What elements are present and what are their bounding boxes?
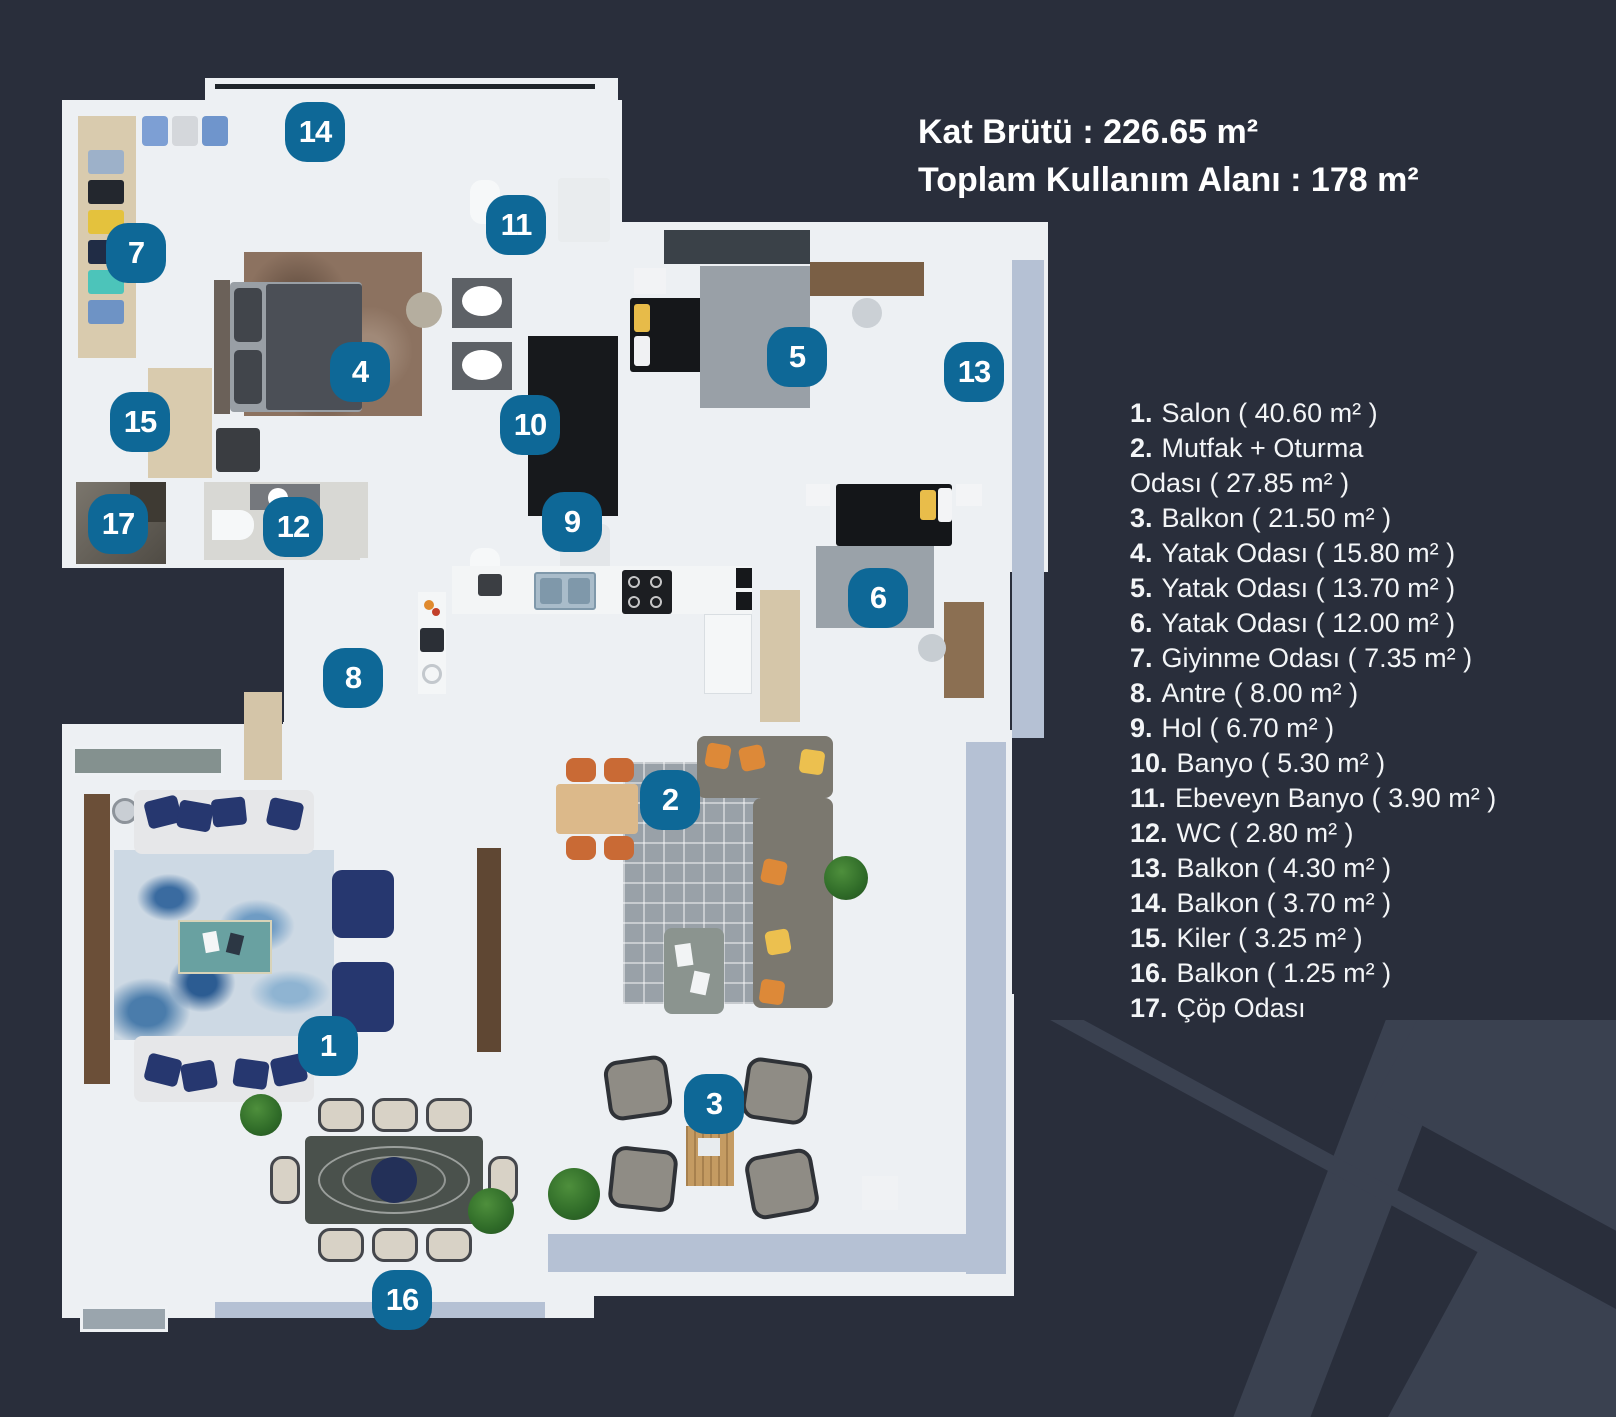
folded-clothes	[88, 150, 124, 174]
ac-unit	[862, 1176, 898, 1210]
throw-pillow	[232, 1058, 270, 1090]
built-in-oven	[736, 592, 752, 610]
legend-item-2: 2.Mutfak + Oturma Odası ( 27.85 m² )	[1130, 431, 1530, 501]
bed-pillow	[634, 304, 650, 332]
wc-toilet	[212, 510, 254, 540]
room-badge-10: 10	[500, 395, 560, 455]
outdoor-armchair	[607, 1145, 679, 1214]
interior-wall	[283, 722, 453, 786]
plant	[468, 1188, 514, 1234]
throw-pillow	[176, 799, 214, 832]
desk	[810, 262, 924, 296]
legend-item-6: 6.Yatak Odası ( 12.00 m² )	[1130, 606, 1530, 641]
room-badge-11: 11	[486, 195, 546, 255]
legend-item-12: 12.WC ( 2.80 m² )	[1130, 816, 1530, 851]
legend-item-4: 4.Yatak Odası ( 15.80 m² )	[1130, 536, 1530, 571]
legend-item-15: 15.Kiler ( 3.25 m² )	[1130, 921, 1530, 956]
shower-tray	[558, 178, 610, 242]
nightstand	[806, 484, 830, 506]
magazine	[675, 943, 694, 967]
coffee-machine	[420, 628, 444, 652]
terrace-slab-bottom	[548, 1234, 966, 1272]
table-tray	[698, 1138, 720, 1156]
throw-pillow	[738, 744, 766, 772]
legend-item-3: 3.Balkon ( 21.50 m² )	[1130, 501, 1530, 536]
bed-pillow	[938, 488, 952, 522]
room-badge-14: 14	[285, 102, 345, 162]
background-stripe	[1327, 1240, 1616, 1417]
dining-chair	[426, 1228, 472, 1262]
plant	[240, 1094, 282, 1136]
legend-item-7: 7.Giyinme Odası ( 7.35 m² )	[1130, 641, 1530, 676]
wardrobe	[664, 230, 810, 264]
legend-item-10: 10.Banyo ( 5.30 m² )	[1130, 746, 1530, 781]
folded-clothes	[88, 300, 124, 324]
bench	[216, 428, 260, 472]
dining-chair	[318, 1228, 364, 1262]
armchair	[332, 870, 394, 938]
fruit-bowl	[432, 608, 440, 616]
bed-headboard	[214, 280, 230, 414]
sofa	[753, 798, 833, 1008]
cooktop-burner	[650, 596, 662, 608]
balcony-14-rail	[215, 84, 595, 89]
round-side-table	[406, 292, 442, 328]
pantry-cabinet	[244, 692, 282, 780]
throw-pillow	[760, 858, 788, 886]
dining-chair	[372, 1098, 418, 1132]
desk-chair	[918, 634, 946, 662]
dining-chair	[426, 1098, 472, 1132]
bed-pillow	[634, 336, 650, 366]
desk-chair	[852, 298, 882, 328]
room-badge-1: 1	[298, 1016, 358, 1076]
nightstand	[956, 484, 982, 506]
room-badge-13: 13	[944, 342, 1004, 402]
bed-pillow	[920, 490, 936, 520]
legend-item-14: 14.Balkon ( 3.70 m² )	[1130, 886, 1530, 921]
interior-wall	[503, 788, 513, 1010]
sink	[462, 286, 502, 316]
cooktop-burner	[650, 576, 662, 588]
chair	[604, 836, 634, 860]
throw-pillow	[211, 796, 248, 827]
room-badge-3: 3	[684, 1074, 744, 1134]
outdoor-armchair	[740, 1056, 814, 1127]
salon-window	[80, 1306, 168, 1332]
sink	[462, 350, 502, 380]
plant	[548, 1168, 600, 1220]
nightstand	[634, 268, 666, 294]
legend-item-13: 13.Balkon ( 4.30 m² )	[1130, 851, 1530, 886]
island-sink	[422, 664, 442, 684]
coffee-table	[178, 920, 272, 974]
hanging-shirt	[202, 116, 228, 146]
chair	[604, 758, 634, 782]
dining-chair	[318, 1098, 364, 1132]
interior-wall	[206, 238, 214, 364]
table-centerpiece	[371, 1157, 417, 1203]
cooktop-burner	[628, 576, 640, 588]
legend-item-9: 9.Hol ( 6.70 m² )	[1130, 711, 1530, 746]
room-badge-6: 6	[848, 568, 908, 628]
folded-clothes	[88, 180, 124, 204]
legend-item-17: 17.Çöp Odası	[1130, 991, 1530, 1026]
room-badge-16: 16	[372, 1270, 432, 1330]
built-in-oven	[736, 568, 752, 588]
floor-plan-page: Kat Brütü : 226.65 m² Toplam Kullanım Al…	[0, 0, 1616, 1417]
media-wall-unit	[84, 794, 110, 1084]
legend-item-8: 8.Antre ( 8.00 m² )	[1130, 676, 1530, 711]
desk	[944, 602, 984, 698]
room-badge-17: 17	[88, 494, 148, 554]
room-badge-2: 2	[640, 770, 700, 830]
room-badge-7: 7	[106, 223, 166, 283]
hanging-shirt	[142, 116, 168, 146]
room-badge-5: 5	[767, 327, 827, 387]
bed-pillow	[234, 288, 262, 342]
cutting-board	[478, 574, 502, 596]
background-stripe-group	[1050, 1020, 1616, 1417]
room-legend: 1.Salon ( 40.60 m² )2.Mutfak + Oturma Od…	[1130, 396, 1530, 1026]
legend-item-5: 5.Yatak Odası ( 13.70 m² )	[1130, 571, 1530, 606]
throw-pillow	[704, 742, 732, 770]
dining-chair	[372, 1228, 418, 1262]
outdoor-armchair	[743, 1147, 821, 1222]
throw-pillow	[180, 1059, 218, 1092]
throw-pillow	[798, 748, 825, 775]
breakfast-table	[556, 784, 638, 834]
kitchen-sink-basin	[568, 578, 590, 604]
legend-item-11: 11.Ebeveyn Banyo ( 3.90 m² )	[1130, 781, 1530, 816]
throw-pillow	[764, 928, 792, 956]
room-badge-4: 4	[330, 342, 390, 402]
hanging-shirt	[172, 116, 198, 146]
interior-wall	[360, 558, 752, 566]
room-badge-12: 12	[263, 497, 323, 557]
outdoor-table	[686, 1126, 734, 1186]
interior-wall	[452, 328, 618, 336]
fridge	[704, 614, 752, 694]
room-badge-15: 15	[110, 392, 170, 452]
chair	[566, 836, 596, 860]
dining-chair	[270, 1156, 300, 1204]
outdoor-armchair	[602, 1054, 674, 1122]
wardrobe	[760, 590, 800, 722]
room-badge-9: 9	[542, 492, 602, 552]
legend-item-1: 1.Salon ( 40.60 m² )	[1130, 396, 1530, 431]
plant	[824, 856, 868, 900]
legend-item-16: 16.Balkon ( 1.25 m² )	[1130, 956, 1530, 991]
bed-pillow	[234, 350, 262, 404]
cooktop-burner	[628, 596, 640, 608]
room-badge-8: 8	[323, 648, 383, 708]
chair	[566, 758, 596, 782]
tv-console	[477, 848, 501, 1052]
throw-pillow	[758, 978, 785, 1005]
terrace-slab-right	[966, 742, 1006, 1274]
floor-plan: 1234567891011121314151617	[0, 0, 1050, 1417]
salon-window	[72, 746, 224, 776]
kitchen-sink-basin	[540, 578, 562, 604]
balcony-13-slab	[1012, 260, 1044, 738]
